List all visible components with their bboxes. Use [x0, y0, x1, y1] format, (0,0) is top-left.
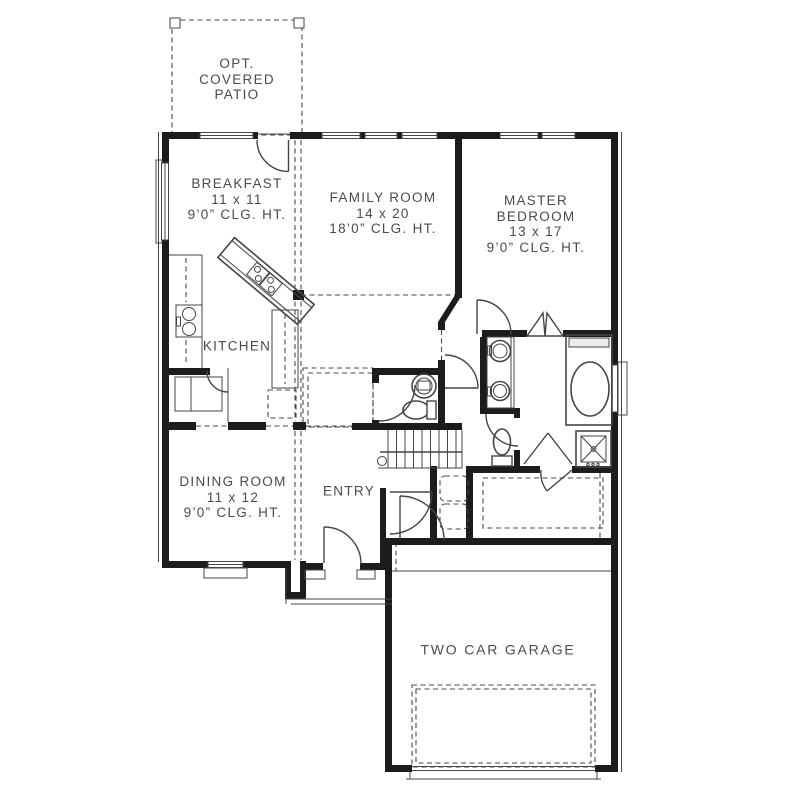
stairs: [378, 430, 463, 468]
room-label-kitchen: KITCHEN: [203, 338, 271, 354]
room-label-patio: OPT. COVERED PATIO: [199, 56, 275, 103]
floor-plan-canvas: OPT. COVERED PATIO BREAKFAST 11 x 11 9’0…: [0, 0, 800, 800]
washer: [440, 476, 468, 501]
garage-door: [392, 571, 611, 779]
refrigerator: [268, 390, 296, 418]
floor-plan-drawing: [0, 0, 800, 800]
garden-tub: [566, 335, 612, 425]
garage-entry-door: [400, 496, 444, 540]
patio-door: [257, 140, 289, 172]
master-double-door: [527, 313, 545, 336]
powder-toilet: [403, 401, 429, 419]
front-door: [324, 527, 361, 564]
master-closet-door: [541, 470, 572, 491]
water-closet-door: [486, 414, 518, 446]
room-label-breakfast: BREAKFAST 11 x 11 9’0” CLG. HT.: [188, 176, 287, 223]
room-label-dining: DINING ROOM 11 x 12 9’0” CLG. HT.: [179, 474, 286, 521]
linen-doors: [524, 433, 572, 464]
dryer: [440, 504, 468, 529]
kitchen-island: [218, 238, 314, 325]
closet-fixtures: [440, 473, 603, 538]
room-label-master: MASTER BEDROOM 13 x 17 9’0” CLG. HT.: [487, 193, 586, 255]
room-label-garage: TWO CAR GARAGE: [420, 642, 575, 658]
pantry-shelves: [175, 377, 222, 411]
kitchen-fixtures: [169, 238, 314, 422]
powder-door: [379, 385, 415, 421]
bath-hall-door: [445, 355, 478, 388]
master-bedroom-door: [477, 300, 511, 334]
powder-room-fixtures: [403, 374, 436, 419]
room-label-entry: ENTRY: [323, 483, 375, 499]
room-label-family: FAMILY ROOM 14 x 20 18’0” CLG. HT.: [329, 190, 436, 237]
hall-door: [390, 492, 432, 534]
